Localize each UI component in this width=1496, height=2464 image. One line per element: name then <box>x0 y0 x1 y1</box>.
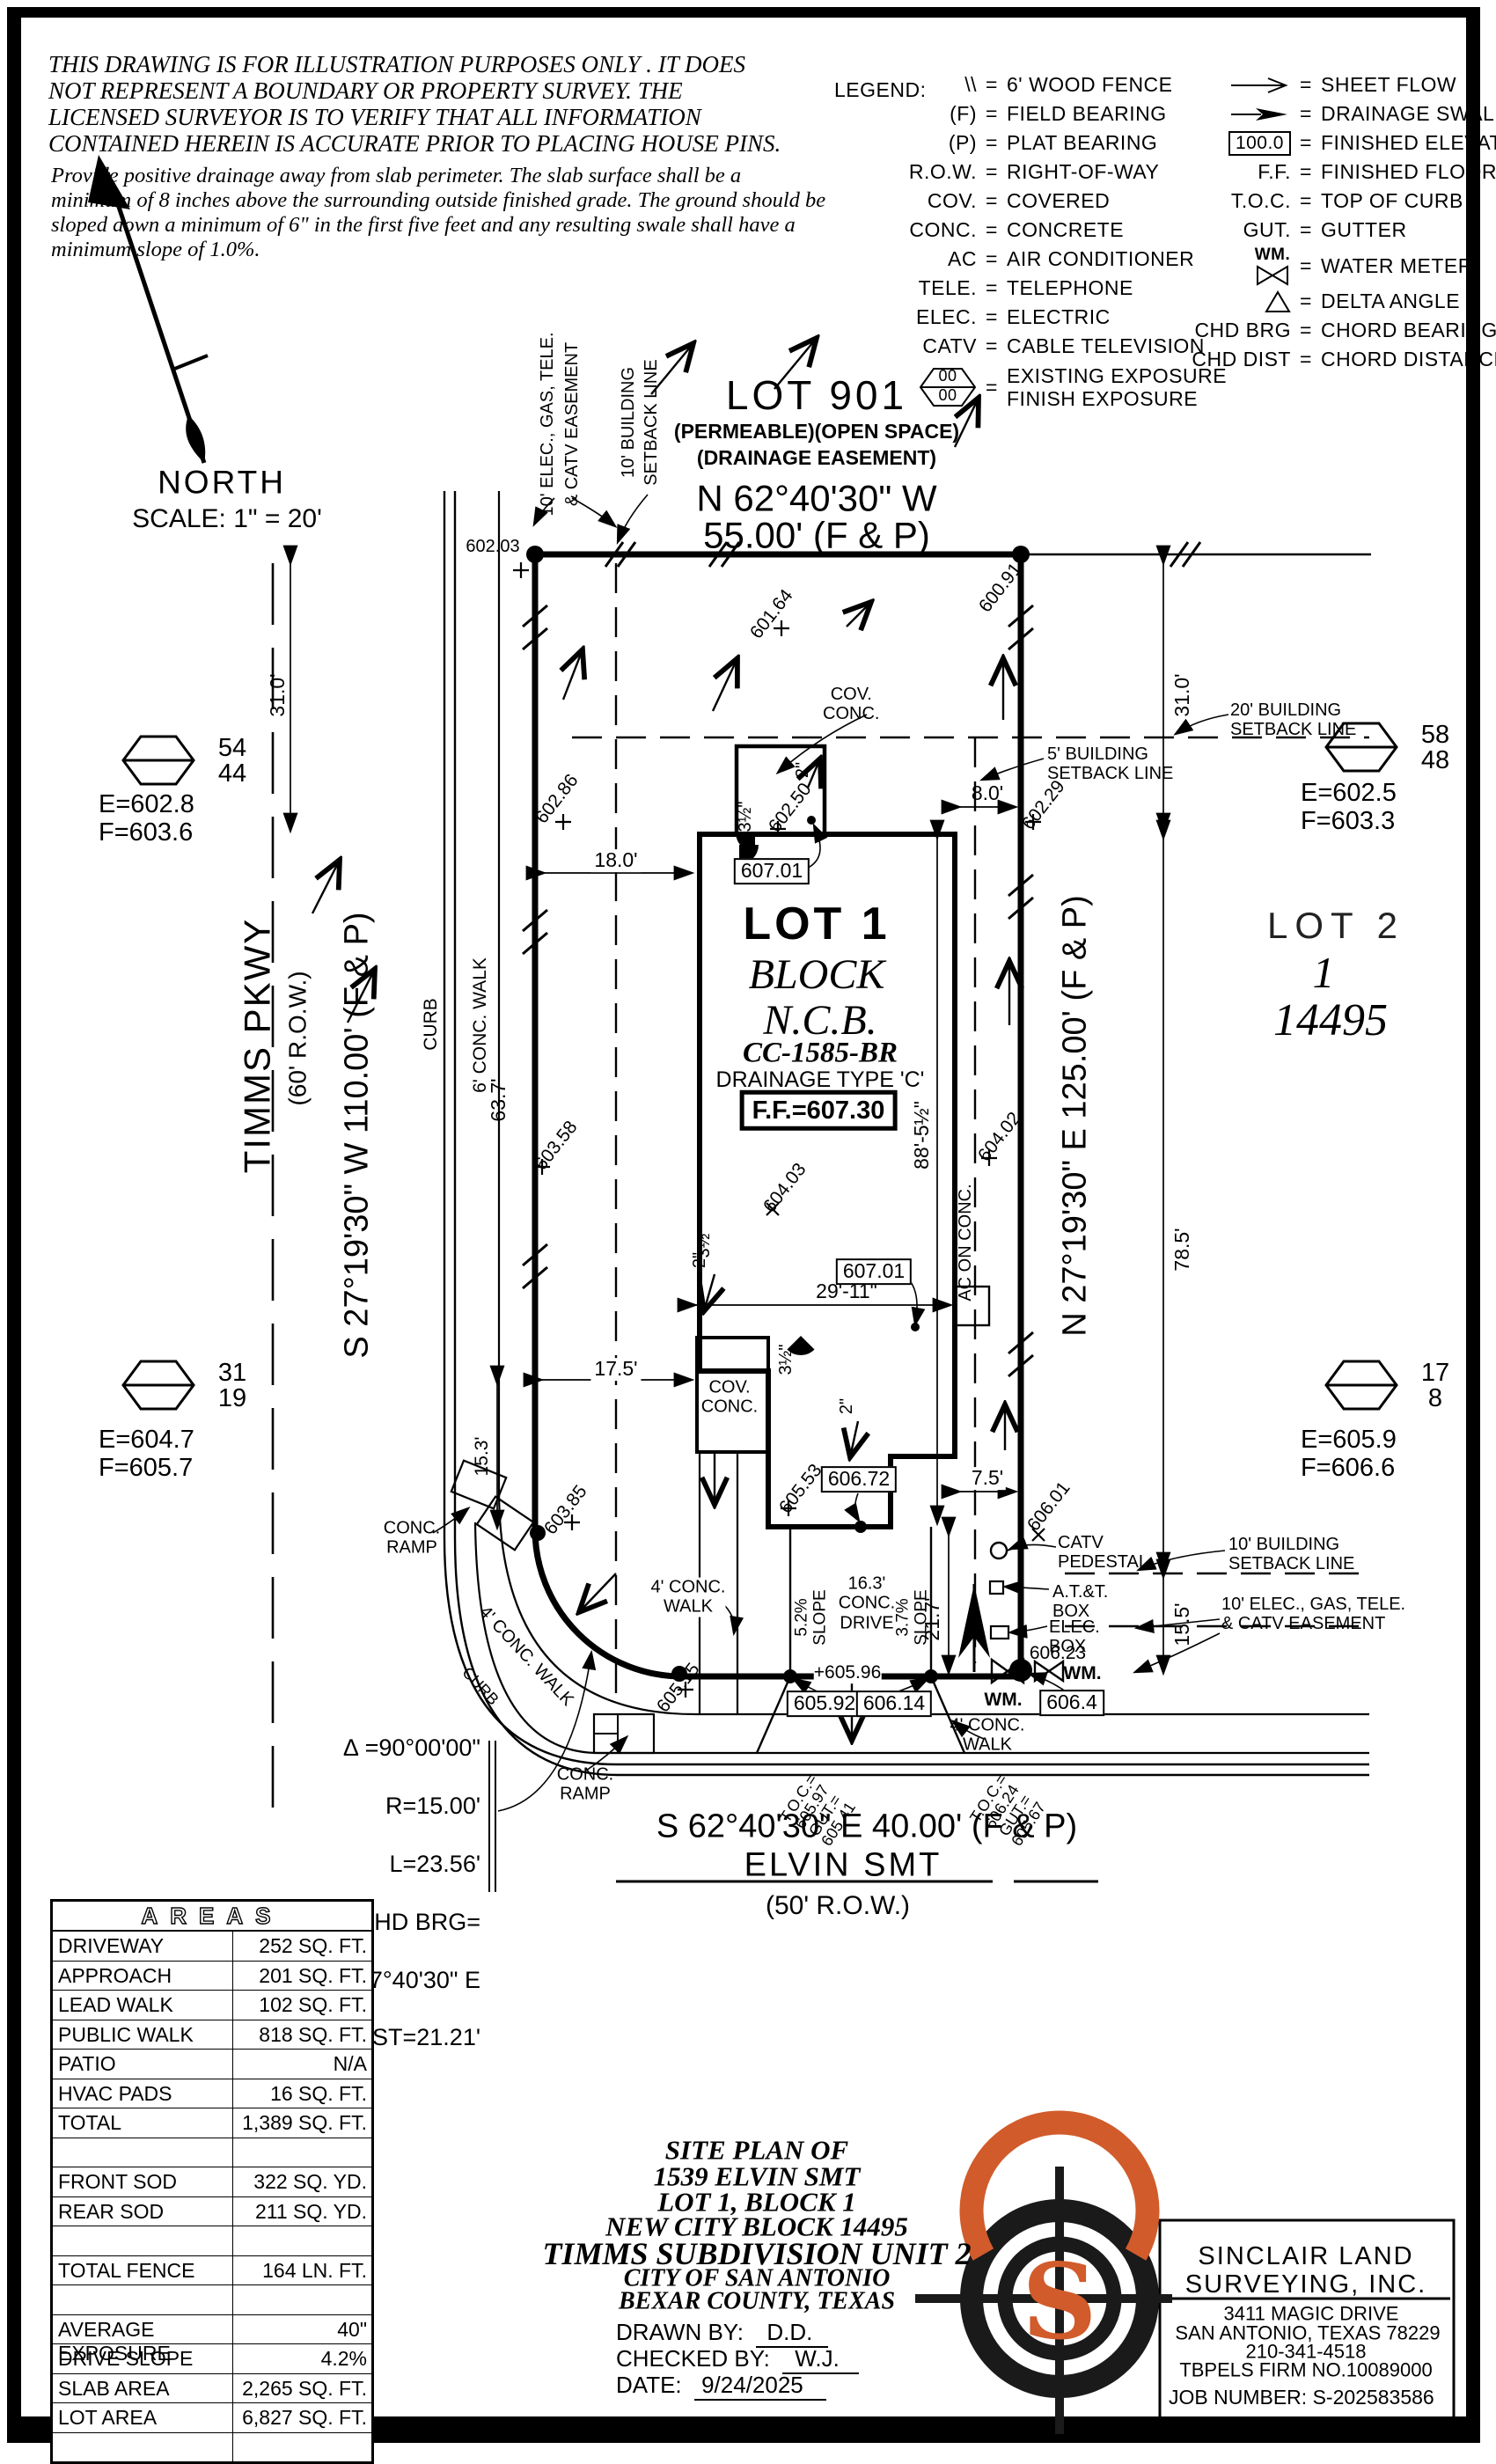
west-easement-line-1: 10' ELEC., GAS, TELE. <box>538 332 557 516</box>
concrete-ramp-left-label: CONC. RAMP <box>384 1519 440 1558</box>
dim-2in-b: 2" <box>837 1398 856 1414</box>
boxed-elev-606-14: 606.14 <box>856 1690 932 1717</box>
water-meter-icon: WM. <box>1172 246 1291 286</box>
legend-equals: = <box>1291 160 1321 184</box>
west-boundary-bearing: S 27°19'30" W 110.00' (F & P) <box>339 912 377 1358</box>
areas-label-cell: AVERAGE EXPOSURE <box>53 2315 233 2344</box>
drawn-by-label: DRAWN BY: D.D. <box>616 2320 828 2345</box>
boxed-elev-605-92: 605.92 <box>787 1690 862 1717</box>
west-walk-dimension: 63.7' <box>488 1078 510 1121</box>
att-box-label: A.T.&T. BOX <box>1052 1582 1108 1622</box>
elev-e-58-48: E=602.5 <box>1301 779 1397 807</box>
dim-78-5: 78.5' <box>1171 1228 1194 1271</box>
legend-symbol: F.F. <box>1172 160 1291 184</box>
legend-row: AC=AIR CONDITIONER <box>858 245 1168 274</box>
legend-definition: COVERED <box>1007 189 1168 212</box>
areas-table-row: SLAB AREA2,265 SQ. FT. <box>53 2374 371 2404</box>
exposure-finish: 8 <box>1398 1384 1472 1413</box>
surveyor-firm-number: TBPELS FIRM NO.10089000 <box>1179 2360 1432 2382</box>
areas-value-cell: 322 SQ. YD. <box>233 2167 371 2196</box>
legend-symbol: (F) <box>858 102 977 126</box>
logo-letter-s: S <box>1022 2244 1096 2360</box>
legend-row: WM.=WATER METER <box>1172 245 1456 287</box>
areas-table-row: TOTAL FENCE164 LN. FT. <box>53 2256 371 2286</box>
legend-symbol: AC <box>858 247 977 271</box>
sheet-flow-arrow-icon <box>1172 77 1291 94</box>
south-easement-label: 10' ELEC., GAS, TELE. & CATV EASEMENT <box>1221 1595 1405 1634</box>
legend-equals: = <box>977 247 1007 271</box>
north-label: NORTH <box>158 464 286 500</box>
dim-3half-b: 3½" <box>776 1345 796 1375</box>
exposure-finish: 48 <box>1398 746 1472 775</box>
lot1-block-label: BLOCK <box>749 951 885 999</box>
drawn-by-value: D.D. <box>756 2319 828 2348</box>
surveyor-name-line-2: SURVEYING, INC. <box>1185 2270 1426 2299</box>
boxed-elev-607-01-b: 607.01 <box>836 1258 912 1285</box>
legend-row: GUT.=GUTTER <box>1172 216 1456 245</box>
curve-length: L=23.56' <box>389 1851 480 1877</box>
lot2-block-number: 1 <box>1313 948 1335 997</box>
concrete-drive-label: 16.3' CONC. DRIVE <box>839 1573 895 1632</box>
exposure-marker-58-48: 58 48 <box>1324 722 1398 773</box>
elev-e-31-19: E=604.7 <box>99 1426 194 1454</box>
areas-value-cell: 4.2% <box>233 2344 371 2373</box>
legend-equals: = <box>977 305 1007 329</box>
legend-equals: = <box>1291 218 1321 242</box>
areas-value-cell: 818 SQ. FT. <box>233 2020 371 2050</box>
east-boundary-bearing: N 27°19'30" E 125.00' (F & P) <box>1057 895 1095 1337</box>
exposure-marker-17-8: 17 8 <box>1324 1360 1398 1411</box>
legend-row: =DRAINAGE SWALE <box>1172 99 1456 128</box>
areas-table-row: FRONT SOD322 SQ. YD. <box>53 2167 371 2197</box>
boxed-elev-606-4: 606.4 <box>1039 1690 1104 1716</box>
legend-row: CHD BRG=CHORD BEARING <box>1172 316 1456 345</box>
legend-row: R.O.W.=RIGHT-OF-WAY <box>858 158 1168 187</box>
legend-definition: DELTA ANGLE <box>1321 290 1460 312</box>
areas-table-row: TOTAL1,389 SQ. FT. <box>53 2108 371 2138</box>
delta-angle-icon <box>1172 290 1291 313</box>
areas-table-row <box>53 2433 371 2462</box>
legend-definition: CHORD DISTANCE <box>1321 348 1496 370</box>
water-meter-right-label: WM. <box>1063 1663 1101 1684</box>
legend-row: \\=6' WOOD FENCE <box>858 70 1168 99</box>
dim-18: 18.0' <box>590 849 641 872</box>
spot-602-03: 602.03 <box>466 537 519 556</box>
titleblock-line-7: BEXAR COUNTY, TEXAS <box>619 2287 895 2314</box>
elev-f-31-19: F=605.7 <box>99 1454 193 1482</box>
drainage-note-line-3: sloped down a minimum of 6" in the first… <box>51 213 796 237</box>
legend-definition: SHEET FLOW <box>1321 73 1456 96</box>
elev-f-58-48: F=603.3 <box>1301 807 1395 835</box>
scale-label: SCALE: 1" = 20' <box>132 504 322 534</box>
wood-fence-icon: \\ <box>858 73 977 97</box>
legend-equals: = <box>977 276 1007 300</box>
areas-value-cell: 2,265 SQ. FT. <box>233 2374 371 2403</box>
drainage-note-line-1: Provide positive drainage away from slab… <box>51 164 741 187</box>
areas-table-row <box>53 2138 371 2168</box>
covered-concrete-left-label: COV. CONC. <box>701 1378 758 1418</box>
walk-label-right: 4' CONC. WALK <box>950 1716 1025 1756</box>
areas-table-row <box>53 2226 371 2256</box>
areas-table-row: LEAD WALK102 SQ. FT. <box>53 1991 371 2020</box>
drive-slope-right-label: 3.7% SLOPE <box>894 1589 932 1645</box>
legend-definition: CONCRETE <box>1007 218 1168 241</box>
legend-equals: = <box>977 218 1007 242</box>
dim-7-5: 7.5' <box>969 1467 1006 1490</box>
date-value: 9/24/2025 <box>694 2372 826 2401</box>
legend-equals: = <box>1291 319 1321 342</box>
legend-symbol: GUT. <box>1172 218 1291 242</box>
finished-floor-elevation: F.F.=607.30 <box>740 1090 898 1131</box>
areas-value-cell: 1,389 SQ. FT. <box>233 2108 371 2138</box>
north-boundary-distance: 55.00' (F & P) <box>703 514 930 555</box>
areas-value-cell: 164 LN. FT. <box>233 2256 371 2285</box>
surveyor-name-line-1: SINCLAIR LAND <box>1198 2242 1413 2270</box>
disclaimer-line-1: THIS DRAWING IS FOR ILLUSTRATION PURPOSE… <box>48 51 745 77</box>
areas-label-cell: REAR SOD <box>53 2197 233 2226</box>
finished-elevation-box-icon: 100.0 <box>1172 131 1291 156</box>
areas-table: AREAS DRIVEWAY252 SQ. FT.APPROACH201 SQ.… <box>50 1899 374 2464</box>
areas-table-row: DRIVE SLOPE4.2% <box>53 2344 371 2374</box>
timms-pkwy-label: TIMMS PKWY <box>236 918 277 1174</box>
elev-f-17-8: F=606.6 <box>1301 1454 1395 1482</box>
areas-label-cell: LEAD WALK <box>53 1991 233 2020</box>
west-setback-line-1: 10' BUILDING <box>619 367 638 478</box>
areas-value-cell: 201 SQ. FT. <box>233 1962 371 1991</box>
ac-on-concrete-label: AC ON CONC. <box>956 1184 975 1301</box>
areas-label-cell: PATIO <box>53 2050 233 2079</box>
areas-value-cell: 6,827 SQ. FT. <box>233 2403 371 2432</box>
legend-row: CATV=CABLE TELEVISION <box>858 332 1168 361</box>
lot901-note-2: (DRAINAGE EASEMENT) <box>697 447 936 470</box>
legend-symbol: COV. <box>858 189 977 213</box>
legend-symbol: CONC. <box>858 218 977 242</box>
boxed-elev-606-72: 606.72 <box>821 1466 897 1492</box>
south-boundary-bearing: S 62°40'30" E 40.00' (F & P) <box>656 1808 1077 1846</box>
lot901-note-1: (PERMEABLE)(OPEN SPACE) <box>674 421 959 444</box>
dim-17-5: 17.5' <box>590 1358 641 1381</box>
legend-definition: TOP OF CURB <box>1321 189 1463 212</box>
disclaimer-line-2: NOT REPRESENT A BOUNDARY OR PROPERTY SUR… <box>48 77 683 104</box>
disclaimer-line-4: CONTAINED HEREIN IS ACCURATE PRIOR TO PL… <box>48 130 781 157</box>
job-number: JOB NUMBER: S-202583586 <box>1169 2387 1434 2409</box>
areas-label-cell <box>53 2433 233 2462</box>
legend-equals: = <box>1291 131 1321 155</box>
legend-symbol: CATV <box>858 334 977 358</box>
north-boundary-bearing: N 62°40'30" W <box>696 477 936 518</box>
exposure-finish: 19 <box>195 1384 269 1413</box>
curve-chord-bearing-label: CHD BRG= <box>357 1909 480 1935</box>
areas-table-row: DRIVEWAY252 SQ. FT. <box>53 1932 371 1962</box>
legend-symbol: ELEC. <box>858 305 977 329</box>
areas-value-cell: 40" <box>233 2315 371 2344</box>
areas-table-row: REAR SOD211 SQ. YD. <box>53 2197 371 2227</box>
legend-definition: RIGHT-OF-WAY <box>1007 160 1168 183</box>
west-walk-label: 6' CONC. WALK <box>470 957 491 1093</box>
dim-15-5: 15.5' <box>1171 1602 1194 1646</box>
dim-3half-c: 3½" <box>736 802 755 832</box>
areas-table-row: HVAC PADS16 SQ. FT. <box>53 2079 371 2109</box>
legend-row: CONC.=CONCRETE <box>858 216 1168 245</box>
legend-definition: FINISHED ELEVATION <box>1321 131 1496 154</box>
spot-605-96: +605.96 <box>814 1662 882 1683</box>
areas-table-row: PATION/A <box>53 2050 371 2079</box>
areas-value-cell <box>233 2226 371 2255</box>
west-setback-line-2: SETBACK LINE <box>642 359 661 485</box>
areas-label-cell: PUBLIC WALK <box>53 2020 233 2050</box>
legend-row: (P)=PLAT BEARING <box>858 128 1168 158</box>
drainage-note-line-4: minimum slope of 1.0%. <box>51 238 260 261</box>
setback-10ft-south-label: 10' BUILDING SETBACK LINE <box>1228 1535 1354 1574</box>
covered-concrete-top-label: COV. CONC. <box>823 685 879 724</box>
elev-e-17-8: E=605.9 <box>1301 1426 1397 1454</box>
concrete-ramp-bottom-label: CONC. RAMP <box>557 1765 613 1805</box>
legend-left-column: \\=6' WOOD FENCE(F)=FIELD BEARING(P)=PLA… <box>858 70 1168 414</box>
dim-88-5half: 88'-5½" <box>911 1101 934 1170</box>
legend-definition: FIELD BEARING <box>1007 102 1168 125</box>
legend-equals: = <box>1291 254 1321 278</box>
legend-symbol: R.O.W. <box>858 160 977 184</box>
elev-f-54-44: F=603.6 <box>99 818 193 847</box>
legend-symbol: T.O.C. <box>1172 189 1291 213</box>
areas-table-row: APPROACH201 SQ. FT. <box>53 1962 371 1991</box>
legend-equals: = <box>977 131 1007 155</box>
legend-row: ELEC.=ELECTRIC <box>858 303 1168 332</box>
legend-definition: AIR CONDITIONER <box>1007 247 1194 270</box>
legend-equals: = <box>977 189 1007 213</box>
catv-pedestal-label: CATV PEDESTAL <box>1058 1533 1148 1573</box>
areas-table-row: AVERAGE EXPOSURE40" <box>53 2315 371 2345</box>
areas-value-cell: 16 SQ. FT. <box>233 2079 371 2108</box>
areas-table-row <box>53 2285 371 2315</box>
west-easement-line-2: & CATV EASEMENT <box>562 342 582 506</box>
legend-equals: = <box>977 73 1007 97</box>
dim-8: 8.0' <box>972 782 1003 805</box>
dim-31-left: 31.0' <box>267 673 290 716</box>
legend-equals: = <box>1291 189 1321 213</box>
lot2-label: LOT 2 <box>1267 905 1404 946</box>
areas-label-cell <box>53 2285 233 2314</box>
legend-definition: FINISHED FLOOR <box>1321 160 1496 183</box>
areas-label-cell: LOT AREA <box>53 2403 233 2432</box>
legend-definition: 6' WOOD FENCE <box>1007 73 1173 96</box>
areas-table-title: AREAS <box>53 1902 371 1932</box>
legend-equals: = <box>1291 290 1321 313</box>
legend-row: CHD DIST=CHORD DISTANCE <box>1172 345 1456 374</box>
legend-definition: TELEPHONE <box>1007 276 1168 299</box>
legend-definition: CHORD BEARING <box>1321 319 1496 341</box>
legend-row: COV.=COVERED <box>858 187 1168 216</box>
areas-label-cell: APPROACH <box>53 1962 233 1991</box>
areas-value-cell: 211 SQ. YD. <box>233 2197 371 2226</box>
curb-label-west: CURB <box>421 998 442 1051</box>
legend-definition: WATER METER <box>1321 254 1473 277</box>
elev-e-54-44: E=602.8 <box>99 790 194 818</box>
legend-row: T.O.C.=TOP OF CURB <box>1172 187 1456 216</box>
checked-by-label: CHECKED BY: W.J. <box>616 2346 859 2372</box>
drainage-type-label: DRAINAGE TYPE 'C' <box>716 1067 925 1092</box>
exposure-finish: 44 <box>195 759 269 788</box>
lot901-label: LOT 901 <box>726 373 907 419</box>
elec-box-label: ELEC. BOX <box>1049 1617 1100 1657</box>
legend-right-column: =SHEET FLOW=DRAINAGE SWALE100.0=FINISHED… <box>1172 70 1456 374</box>
lot2-ncb-number: 14495 <box>1273 995 1388 1046</box>
lot1-label: LOT 1 <box>743 898 890 950</box>
legend-equals: = <box>977 334 1007 358</box>
legend-definition: DRAINAGE SWALE <box>1321 102 1496 125</box>
elvin-row-label: (50' R.O.W.) <box>766 1891 910 1921</box>
areas-label-cell: TOTAL FENCE <box>53 2256 233 2285</box>
exposure-marker-31-19: 31 19 <box>121 1360 195 1411</box>
curve-delta: ∆ =90°00'00" <box>344 1734 480 1761</box>
legend-definition: GUTTER <box>1321 218 1456 241</box>
legend-symbol: CHD DIST <box>1172 348 1291 371</box>
legend-symbol: (P) <box>858 131 977 155</box>
boxed-elev-607-01-a: 607.01 <box>734 858 810 884</box>
site-plan-sheet: THIS DRAWING IS FOR ILLUSTRATION PURPOSE… <box>0 0 1496 2464</box>
legend-row: =DELTA ANGLE <box>1172 287 1456 316</box>
areas-label-cell: SLAB AREA <box>53 2374 233 2403</box>
dim-2in-c: 2" <box>793 762 812 778</box>
dim-15-3: 15.3' <box>472 1437 493 1477</box>
legend-equals: = <box>1291 73 1321 97</box>
legend-symbol: TELE. <box>858 276 977 300</box>
water-meter-left-label: WM. <box>984 1690 1022 1711</box>
checked-by-value: W.J. <box>782 2345 859 2374</box>
dim-31-right: 31.0' <box>1171 673 1194 716</box>
legend-definition: ELECTRIC <box>1007 305 1168 328</box>
areas-label-cell <box>53 2226 233 2255</box>
areas-table-row: PUBLIC WALK818 SQ. FT. <box>53 2020 371 2050</box>
legend-equals: = <box>977 376 1007 400</box>
timms-row-label: (60' R.O.W.) <box>283 971 311 1105</box>
areas-label-cell: FRONT SOD <box>53 2167 233 2196</box>
legend-equals: = <box>1291 102 1321 126</box>
legend-row: =SHEET FLOW <box>1172 70 1456 99</box>
areas-value-cell: 252 SQ. FT. <box>233 1932 371 1961</box>
areas-value-cell: N/A <box>233 2050 371 2079</box>
legend-row: 100.0=FINISHED ELEVATION <box>1172 128 1456 158</box>
legend-equals: = <box>1291 348 1321 371</box>
legend-equals: = <box>977 160 1007 184</box>
legend-equals: = <box>977 102 1007 126</box>
elvin-smt-label: ELVIN SMT <box>744 1847 942 1885</box>
drainage-swale-arrow-icon <box>1172 107 1291 121</box>
curve-radius: R=15.00' <box>385 1793 480 1819</box>
legend-row: TELE.=TELEPHONE <box>858 274 1168 303</box>
areas-value-cell: 102 SQ. FT. <box>233 1991 371 2020</box>
drive-slope-left-label: 5.2% SLOPE <box>793 1589 831 1645</box>
disclaimer-line-3: LICENSED SURVEYOR IS TO VERIFY THAT ALL … <box>48 104 701 130</box>
areas-value-cell <box>233 2285 371 2314</box>
areas-table-row: LOT AREA6,827 SQ. FT. <box>53 2403 371 2433</box>
legend-definition: PLAT BEARING <box>1007 131 1168 154</box>
lot1-cc-number: CC-1585-BR <box>743 1038 898 1070</box>
legend-row: F.F.=FINISHED FLOOR <box>1172 158 1456 187</box>
areas-label-cell: DRIVEWAY <box>53 1932 233 1961</box>
areas-value-cell <box>233 2138 371 2167</box>
areas-label-cell <box>53 2138 233 2167</box>
dim-2in-a: 2" <box>690 1252 709 1268</box>
setback-5ft-label: 5' BUILDING SETBACK LINE <box>1047 744 1173 784</box>
areas-label-cell: HVAC PADS <box>53 2079 233 2108</box>
drainage-note-line-2: minimum of 8 inches above the surroundin… <box>51 188 825 212</box>
areas-label-cell: DRIVE SLOPE <box>53 2344 233 2373</box>
walk-label-mid: 4' CONC. WALK <box>651 1578 726 1617</box>
date-label: DATE: 9/24/2025 <box>616 2372 826 2398</box>
legend-row: (F)=FIELD BEARING <box>858 99 1168 128</box>
areas-value-cell <box>233 2433 371 2462</box>
areas-label-cell: TOTAL <box>53 2108 233 2138</box>
exposure-marker-54-44: 54 44 <box>121 735 195 786</box>
legend-symbol: CHD BRG <box>1172 319 1291 342</box>
